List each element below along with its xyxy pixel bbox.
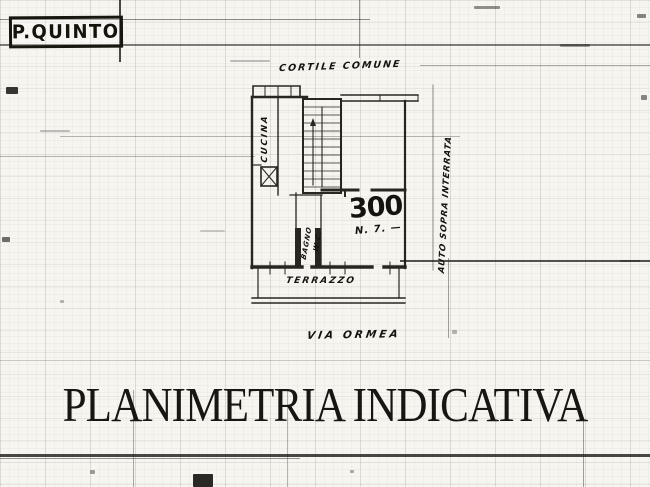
scan-speck <box>60 300 64 303</box>
scan-speck <box>641 95 647 100</box>
floor-label-box: P.QUINTO <box>9 16 123 49</box>
scan-speck <box>350 470 354 473</box>
scan-artifact-line <box>0 454 650 457</box>
page-title: PLANIMETRIA INDICATIVA <box>39 376 611 433</box>
floor-label: P.QUINTO <box>12 21 120 44</box>
scan-speck <box>637 14 646 18</box>
room-number: 300 <box>348 190 403 225</box>
terrace-railing-top <box>341 95 418 101</box>
street-label: VIA ORMEA <box>306 328 401 342</box>
balcony-top <box>253 86 300 97</box>
scan-artifact-line <box>0 458 300 459</box>
scan-speck <box>2 237 10 242</box>
scan-speck <box>40 130 70 132</box>
scan-speck <box>193 474 213 487</box>
scan-artifact-line <box>0 156 255 157</box>
scan-speck <box>200 230 225 232</box>
kitchen-label: CUCINA <box>260 114 270 164</box>
staircase <box>303 99 341 193</box>
scan-speck <box>90 470 95 474</box>
terrace-label: TERRAZZO <box>285 276 357 286</box>
scan-speck <box>620 260 640 262</box>
scan-speck <box>474 6 500 9</box>
scan-speck <box>6 87 18 94</box>
elevator <box>261 167 277 186</box>
scan-speck <box>560 44 590 47</box>
scan-artifact-line <box>359 0 360 58</box>
